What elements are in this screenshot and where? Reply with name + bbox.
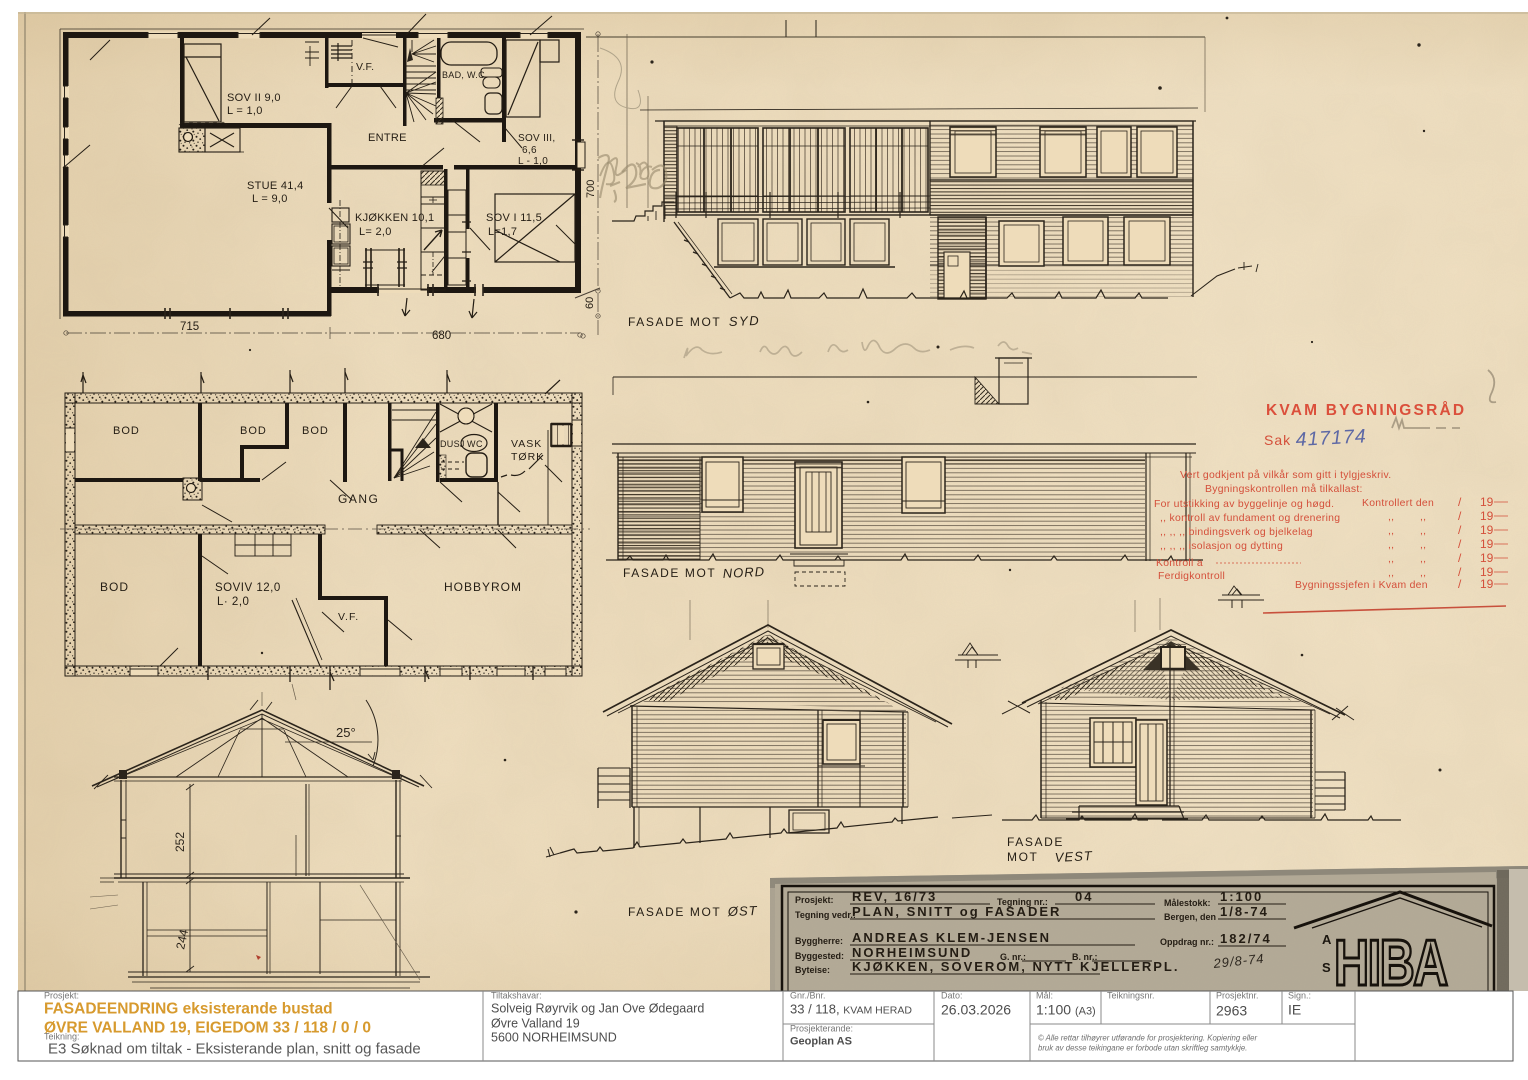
- svg-text:680: 680: [432, 330, 451, 342]
- svg-text:700: 700: [585, 180, 597, 198]
- svg-text:© Alle rettar tilhøyrer utføra: © Alle rettar tilhøyrer utførande for pr…: [1038, 1034, 1257, 1043]
- svg-text:A: A: [1322, 932, 1332, 947]
- svg-text:BOD: BOD: [240, 425, 267, 437]
- svg-text:252: 252: [173, 832, 187, 852]
- svg-text:Tegning vedr.:: Tegning vedr.:: [795, 910, 856, 920]
- svg-text:Gnr./Bnr.: Gnr./Bnr.: [790, 991, 826, 1001]
- svg-text:26.03.2026: 26.03.2026: [941, 1002, 1011, 1018]
- svg-text:Kontrollert den: Kontrollert den: [1362, 498, 1434, 509]
- svg-text:Prosjektnr.: Prosjektnr.: [1216, 991, 1259, 1001]
- svg-text:Øvre Valland 19: Øvre Valland 19: [491, 1017, 580, 1031]
- svg-text:5600 NORHEIMSUND: 5600 NORHEIMSUND: [491, 1031, 617, 1045]
- svg-text:Oppdrag nr.:: Oppdrag nr.:: [1160, 937, 1214, 947]
- svg-text:bruk av desse teikingane er fo: bruk av desse teikingane er forbode utan…: [1038, 1044, 1247, 1053]
- svg-text:FASADE MOT: FASADE MOT: [628, 905, 721, 919]
- svg-text:,,: ,,: [1388, 568, 1394, 579]
- svg-text:FASADE MOT: FASADE MOT: [628, 315, 721, 329]
- svg-text:1/8-74: 1/8-74: [1220, 904, 1269, 919]
- svg-text:19: 19: [1480, 551, 1494, 565]
- svg-text:,, ,, ,, isolasjon og: ,, ,, ,, isolasjon og dytting: [1160, 541, 1283, 552]
- svg-text:VEST: VEST: [1054, 848, 1093, 865]
- svg-text:BOD: BOD: [100, 580, 129, 594]
- svg-text:Byteise:: Byteise:: [795, 965, 830, 975]
- svg-text:L - 1,0: L - 1,0: [518, 156, 548, 167]
- svg-text:Prosjekt:: Prosjekt:: [44, 991, 79, 1001]
- svg-text:Vert godkjent på vilkår som gi: Vert godkjent på vilkår som gitt i tylgj…: [1180, 469, 1391, 481]
- svg-text:KVAM BYGNINGSRÅD: KVAM BYGNINGSRÅD: [1266, 402, 1466, 419]
- svg-text:ENTRE: ENTRE: [368, 132, 407, 144]
- svg-text:L· 2,0: L· 2,0: [217, 596, 249, 608]
- svg-text:HOBBYROM: HOBBYROM: [444, 580, 522, 594]
- svg-text:REV, 16/73: REV, 16/73: [852, 889, 937, 904]
- svg-text:For utstikking av byggelinje o: For utstikking av byggelinje og høgd.: [1154, 499, 1334, 510]
- svg-text:DUSJ: DUSJ: [440, 439, 465, 449]
- svg-text:FASADEENDRING eksisterande bus: FASADEENDRING eksisterande bustad: [44, 1001, 333, 1018]
- svg-text:Bergen, den: Bergen, den: [1164, 912, 1216, 922]
- svg-text:33 / 118, KVAM HERAD: 33 / 118, KVAM HERAD: [790, 1002, 912, 1017]
- svg-text:L= 2,0: L= 2,0: [359, 226, 392, 238]
- svg-text:MOT: MOT: [1007, 850, 1038, 864]
- svg-text:Kontroll a: Kontroll a: [1156, 558, 1203, 569]
- svg-text:FASADE: FASADE: [1007, 835, 1064, 849]
- svg-text:NORD: NORD: [722, 564, 765, 581]
- svg-text:SYD: SYD: [729, 313, 761, 329]
- svg-text:Sak: Sak: [1264, 432, 1291, 448]
- svg-text:19: 19: [1480, 523, 1494, 537]
- svg-text:Prosjekterande:: Prosjekterande:: [790, 1024, 853, 1034]
- svg-text:GANG: GANG: [338, 492, 379, 506]
- svg-text:19: 19: [1480, 577, 1494, 591]
- svg-text:ØVRE VALLAND 19, EIGEDOM 33 /: ØVRE VALLAND 19, EIGEDOM 33 / 118 / 0 / …: [44, 1020, 371, 1037]
- svg-text:PLAN, SNITT og FASADER: PLAN, SNITT og FASADER: [852, 904, 1061, 919]
- svg-text:19: 19: [1480, 537, 1494, 551]
- svg-text:04: 04: [1075, 889, 1093, 904]
- svg-text:,, ,, ,, bindingsverk: ,, ,, ,, bindingsverk og bjelkelag: [1160, 527, 1313, 538]
- svg-text:,,: ,,: [1388, 540, 1394, 551]
- svg-text:E3 Søknad om tiltak - Eksister: E3 Søknad om tiltak - Eksisterande plan,…: [48, 1041, 421, 1058]
- svg-text:V.F.: V.F.: [338, 611, 359, 623]
- svg-text:,,: ,,: [1420, 540, 1426, 551]
- svg-text:19: 19: [1480, 495, 1494, 509]
- svg-text:Bygningskontrollen må tilkalla: Bygningskontrollen må tilkallast:: [1205, 483, 1363, 495]
- svg-text:Byggherre:: Byggherre:: [795, 936, 843, 946]
- svg-text:Sign.:: Sign.:: [1288, 991, 1311, 1001]
- svg-text:FASADE MOT: FASADE MOT: [623, 566, 716, 580]
- svg-text:Teikningsnr.: Teikningsnr.: [1107, 991, 1155, 1001]
- svg-text:BAD, W.C.: BAD, W.C.: [442, 70, 488, 80]
- svg-text:,,: ,,: [1420, 554, 1426, 565]
- svg-text:L = 9,0: L = 9,0: [252, 193, 288, 205]
- svg-text:Bygningssjefen i Kvam den: Bygningssjefen i Kvam den: [1295, 580, 1428, 591]
- svg-text:Mål:: Mål:: [1036, 991, 1053, 1001]
- svg-text:WC: WC: [467, 439, 483, 449]
- svg-text:,,: ,,: [1388, 554, 1394, 565]
- svg-text:L=1,7: L=1,7: [488, 226, 517, 238]
- svg-text:1:100: 1:100: [1220, 889, 1263, 904]
- svg-text:BOD: BOD: [113, 425, 140, 437]
- svg-text:SOV III,: SOV III,: [518, 133, 555, 144]
- svg-text:Tiltakshavar:: Tiltakshavar:: [491, 991, 542, 1001]
- svg-text:,, kontroll av fundament og: ,, kontroll av fundament og drenering: [1160, 513, 1340, 524]
- svg-text:SOV II 9,0: SOV II 9,0: [227, 92, 281, 104]
- svg-text:6,6: 6,6: [522, 145, 537, 156]
- svg-text:IE: IE: [1288, 1002, 1301, 1018]
- svg-text:,,: ,,: [1388, 512, 1394, 523]
- svg-text:417174: 417174: [1295, 425, 1367, 451]
- svg-text:25°: 25°: [336, 725, 356, 740]
- svg-text:HIBA: HIBA: [1334, 927, 1448, 1000]
- svg-text:Geoplan AS: Geoplan AS: [790, 1036, 852, 1048]
- svg-text:VASK: VASK: [511, 438, 542, 450]
- svg-text:182/74: 182/74: [1220, 931, 1272, 946]
- svg-text:SOVIV 12,0: SOVIV 12,0: [215, 582, 281, 594]
- svg-text:Byggested:: Byggested:: [795, 951, 844, 961]
- svg-text:715: 715: [180, 321, 199, 333]
- svg-text:L = 1,0: L = 1,0: [227, 105, 263, 117]
- svg-text:KJØKKEN 10,1: KJØKKEN 10,1: [355, 212, 434, 224]
- svg-text:,,: ,,: [1420, 568, 1426, 579]
- svg-text:Målestokk:: Målestokk:: [1164, 898, 1211, 908]
- svg-text:V.F.: V.F.: [356, 61, 374, 73]
- svg-text:60: 60: [584, 297, 596, 309]
- svg-text:Solveig Røyrvik og Jan Ove Øde: Solveig Røyrvik og Jan Ove Ødegaard: [491, 1002, 704, 1016]
- svg-text:,,: ,,: [1420, 526, 1426, 537]
- svg-text:STUE 41,4: STUE 41,4: [247, 180, 304, 192]
- svg-text:SOV I 11,5: SOV I 11,5: [486, 212, 542, 224]
- svg-text:Ferdigkontroll: Ferdigkontroll: [1158, 571, 1225, 582]
- svg-text:Prosjekt:: Prosjekt:: [795, 895, 834, 905]
- svg-text:ØST: ØST: [727, 903, 758, 919]
- svg-text:2963: 2963: [1216, 1003, 1247, 1019]
- svg-text:BOD: BOD: [302, 425, 329, 437]
- svg-text:TØRK: TØRK: [511, 451, 544, 463]
- svg-text:,,: ,,: [1420, 512, 1426, 523]
- svg-text:,,: ,,: [1388, 526, 1394, 537]
- svg-text:NORHEIMSUND: NORHEIMSUND: [852, 945, 972, 960]
- svg-text:ANDREAS KLEM-JENSEN: ANDREAS KLEM-JENSEN: [852, 930, 1051, 945]
- svg-text:S: S: [1322, 960, 1331, 975]
- svg-text:19: 19: [1480, 509, 1494, 523]
- svg-text:Dato:: Dato:: [941, 991, 963, 1001]
